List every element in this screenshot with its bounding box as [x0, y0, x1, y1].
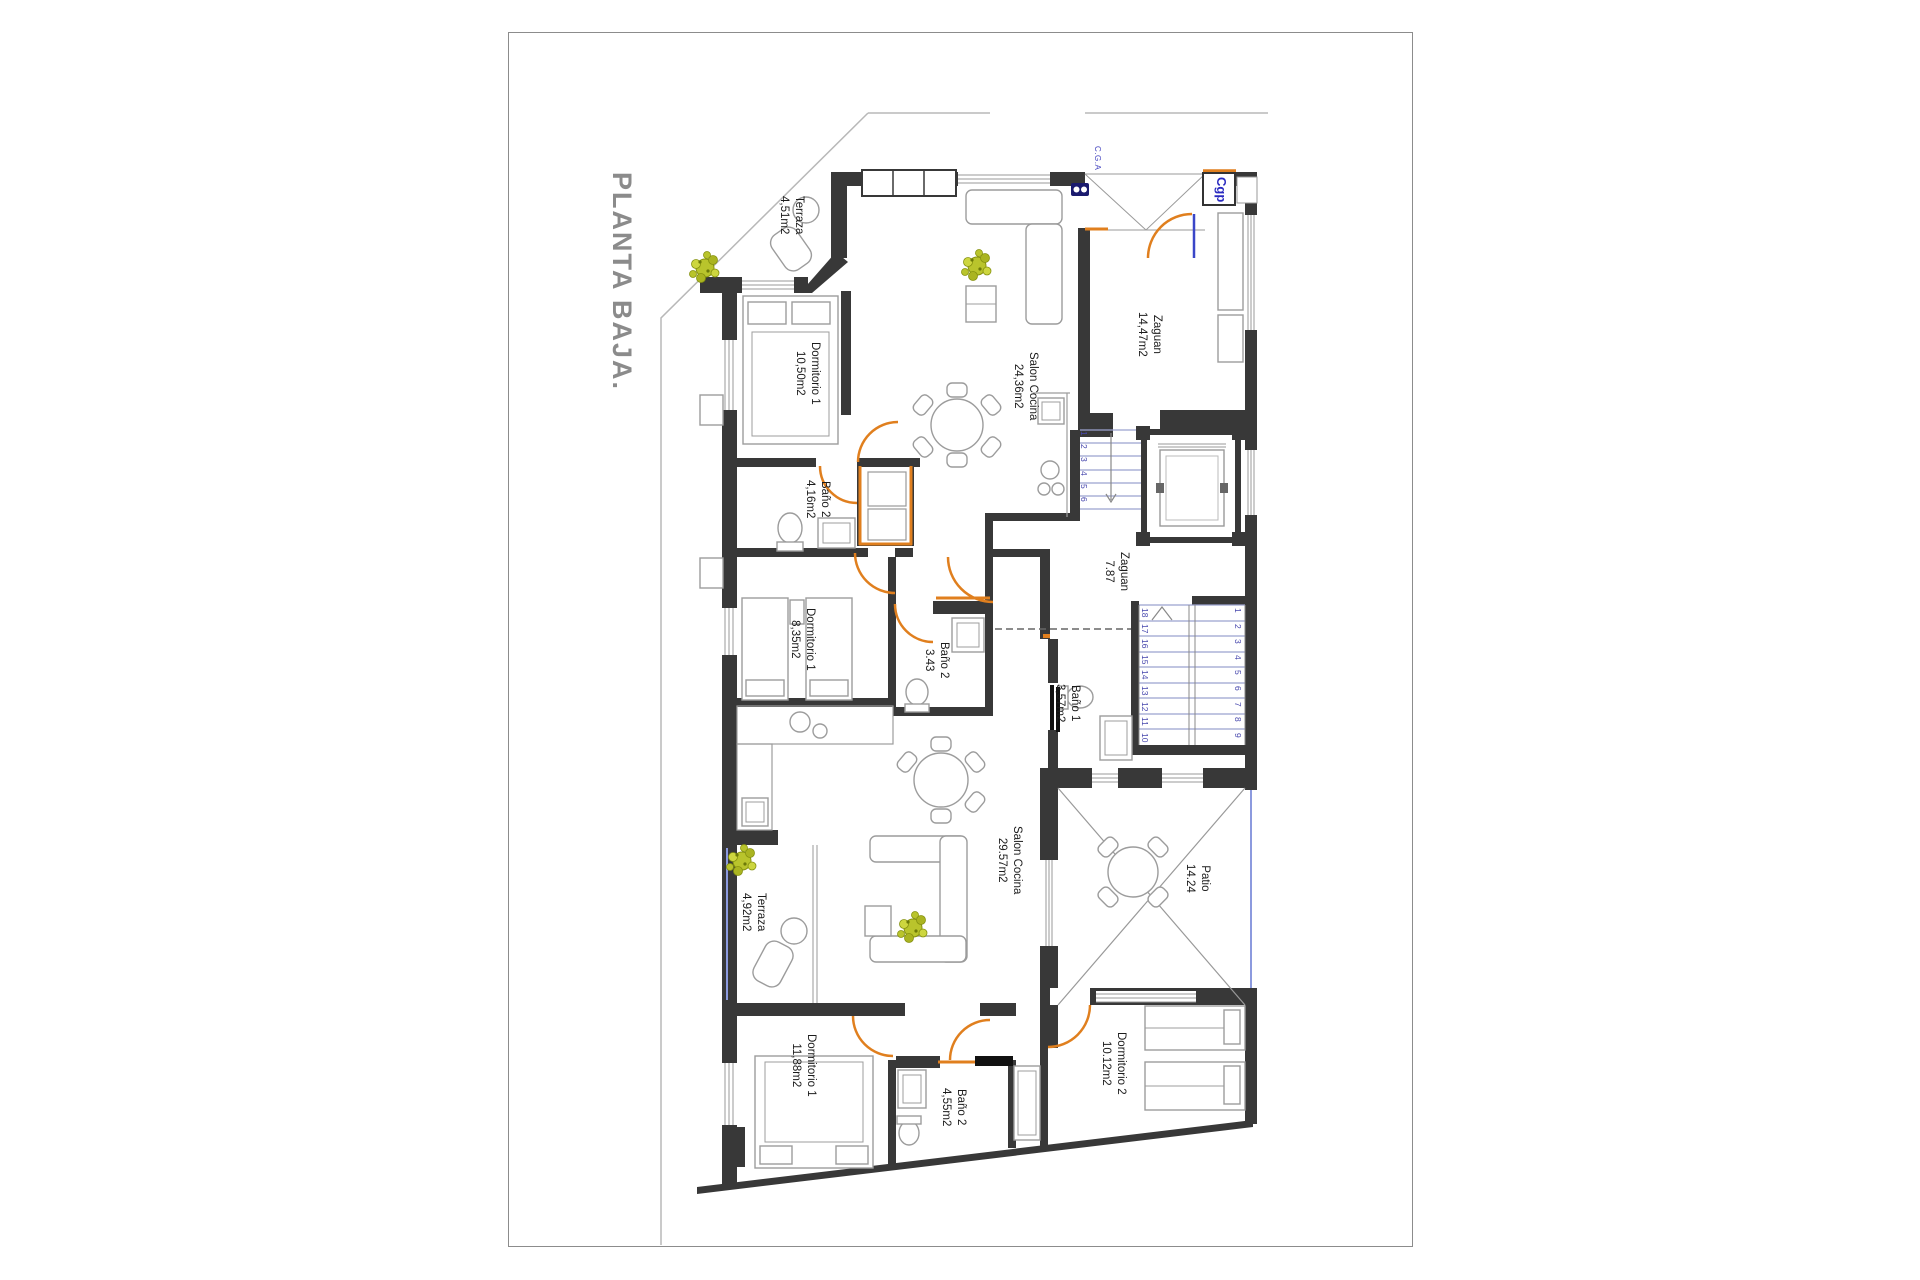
- wardrobe: [858, 466, 913, 545]
- stair-number: 5: [1233, 670, 1243, 675]
- room-label-salon-cocina-1: Salon Cocina24,36m2: [1010, 352, 1040, 420]
- stair-number: 1: [1233, 608, 1243, 613]
- stair-number: 10: [1140, 733, 1150, 742]
- stair-number: 5: [1079, 484, 1089, 489]
- sofa: [870, 836, 967, 962]
- room-label-zaguan-1: Zaguan14,47m2: [1134, 312, 1164, 357]
- door-arc: [950, 1020, 990, 1060]
- room-label-bano2-a: Baño 24,16m2: [802, 480, 832, 518]
- room-label-dormitorio-1b: Dormitorio 18,35m2: [787, 608, 817, 671]
- room-label-terraza-1: Terraza4,51m2: [776, 196, 806, 234]
- bed: [743, 296, 838, 444]
- room-label-dormitorio-1c: Dormitorio 111,88m2: [788, 1034, 818, 1097]
- meter-icon: [1071, 183, 1089, 196]
- room-label-dormitorio-2: Dormitorio 210.12m2: [1098, 1032, 1128, 1095]
- upper-stairs: [1080, 430, 1142, 509]
- main-stairs: [1139, 605, 1245, 745]
- stair-number: 6: [1233, 686, 1243, 691]
- window-blue-edges: [727, 790, 1251, 1000]
- cgp-label: Cgp: [1214, 177, 1229, 202]
- tv-cabinet: [865, 906, 891, 936]
- stair-number: 17: [1140, 624, 1150, 633]
- door-arc: [858, 422, 898, 462]
- stair-number: 6: [1079, 497, 1089, 502]
- room-label-salon-cocina-2: Salon Cocina29.57m2: [994, 826, 1024, 894]
- room-label-terraza-2: Terraza4,92m2: [738, 893, 768, 931]
- stair-number: 12: [1140, 702, 1150, 711]
- stair-number: 14: [1140, 670, 1150, 679]
- room-label-bano2-b: Baño 23.43: [921, 642, 951, 678]
- pilaster: [700, 395, 723, 425]
- stairs-up-arrow: [1152, 607, 1172, 620]
- cga-label: C.G.A: [1093, 146, 1102, 170]
- dining-table: [895, 737, 987, 823]
- door-arc: [853, 1016, 893, 1056]
- stair-number: 4: [1079, 471, 1089, 476]
- toilet: [777, 513, 803, 551]
- plant-icon: [962, 250, 992, 281]
- room-label-dormitorio-1a: Dormitorio 110,50m2: [792, 342, 822, 405]
- stair-number: 7: [1233, 702, 1243, 707]
- toilet: [897, 1116, 921, 1145]
- dining-table: [911, 383, 1003, 467]
- room-label-bano2-c: Baño 24,55m2: [938, 1088, 968, 1126]
- door-arc: [1148, 214, 1192, 258]
- room-label-patio: Patio14.24: [1182, 864, 1212, 893]
- stair-number: 15: [1140, 655, 1150, 664]
- stair-number: 9: [1233, 733, 1243, 738]
- cgp-box: [1203, 173, 1257, 205]
- room-label-zaguan-2: Zaguan7.87: [1101, 552, 1131, 591]
- floor-plan-sheet: PLANTA BAJA. Terraza4,51m2 Dormitorio 11…: [0, 0, 1920, 1280]
- bed: [1145, 1006, 1245, 1110]
- page-title: PLANTA BAJA.: [606, 172, 637, 391]
- stair-number: 8: [1233, 717, 1243, 722]
- kitchen-counter: [737, 706, 893, 830]
- stair-number: 3: [1233, 639, 1243, 644]
- elevator: [1136, 426, 1246, 546]
- stair-number: 4: [1233, 655, 1243, 660]
- room-label-bano1: Baño 13,57m2: [1052, 684, 1082, 722]
- stair-number: 18: [1140, 608, 1150, 617]
- stair-number: 11: [1140, 717, 1150, 726]
- stair-number: 13: [1140, 686, 1150, 695]
- door-arc: [895, 604, 933, 642]
- pilaster: [700, 558, 723, 588]
- stair-number: 16: [1140, 639, 1150, 648]
- stair-number: 1: [1079, 431, 1089, 436]
- patio-table: [1096, 835, 1170, 909]
- stair-number: 2: [1079, 444, 1089, 449]
- stair-number: 2: [1233, 624, 1243, 629]
- toilet: [905, 679, 929, 712]
- stair-number: 3: [1079, 457, 1089, 462]
